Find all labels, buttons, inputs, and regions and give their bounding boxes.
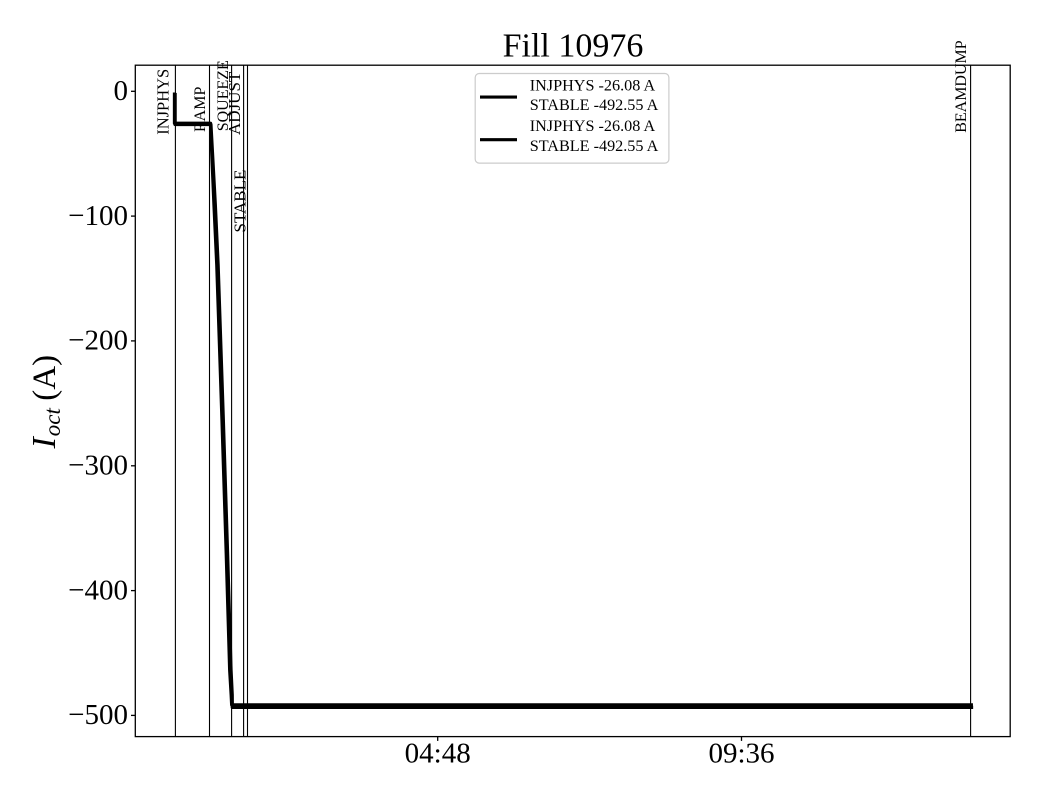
svg-text:STABLE: STABLE	[231, 170, 250, 233]
svg-text:STABLE -492.55 A: STABLE -492.55 A	[530, 137, 659, 155]
svg-text:oct: oct	[40, 407, 65, 436]
svg-text:I: I	[26, 436, 63, 450]
svg-text:04:48: 04:48	[405, 738, 471, 770]
svg-text:Fill 10976: Fill 10976	[503, 28, 644, 65]
svg-text:ADJUST: ADJUST	[225, 71, 244, 135]
svg-text:−100: −100	[68, 200, 128, 232]
svg-text:−500: −500	[68, 699, 128, 731]
svg-text:(A): (A)	[27, 355, 63, 401]
svg-text:09:36: 09:36	[708, 738, 774, 770]
svg-text:STABLE -492.55 A: STABLE -492.55 A	[530, 96, 659, 114]
svg-text:INJPHYS -26.08 A: INJPHYS -26.08 A	[530, 117, 656, 135]
svg-text:0: 0	[114, 75, 129, 107]
svg-text:BEAMDUMP: BEAMDUMP	[953, 40, 970, 133]
svg-text:−300: −300	[68, 450, 128, 482]
svg-text:−400: −400	[68, 574, 128, 606]
svg-text:−200: −200	[68, 325, 128, 357]
svg-text:INJPHYS -26.08 A: INJPHYS -26.08 A	[530, 76, 656, 94]
svg-text:INJPHYS: INJPHYS	[154, 69, 173, 135]
